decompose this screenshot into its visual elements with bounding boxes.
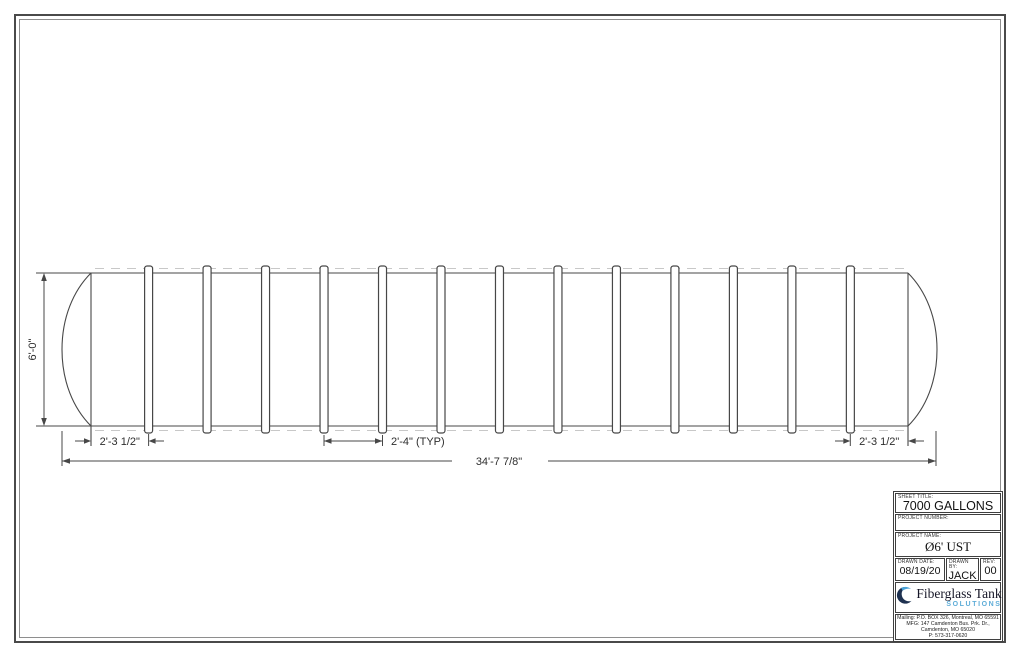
project-name-cell: PROJECT NAME: Ø6' UST: [895, 532, 1001, 557]
company-logo: Fiberglass Tank SOLUTIONS: [894, 585, 1001, 610]
dimensions: 6'-0" 2'-3 1/2" 2'-4" (TYP) 2'-3 1/2" 34…: [27, 273, 936, 468]
project-name-value: Ø6' UST: [896, 539, 1000, 554]
drawn-by-value: JACK: [947, 570, 978, 582]
project-number-label: PROJECT NUMBER:: [896, 515, 1000, 521]
tank-ribs: [145, 266, 855, 433]
tank-rib: [437, 266, 445, 433]
logo-cell: Fiberglass Tank SOLUTIONS: [895, 582, 1001, 613]
dimension-lines: [36, 273, 936, 466]
tank-rib: [612, 266, 620, 433]
logo-company-name: Fiberglass Tank: [916, 587, 1001, 600]
sheet-title-value: 7000 GALLONS: [896, 500, 1000, 513]
tank-rib: [379, 266, 387, 433]
tank-rib: [145, 266, 153, 433]
tank-drawing: 6'-0" 2'-3 1/2" 2'-4" (TYP) 2'-3 1/2" 34…: [0, 0, 1024, 661]
fiberglass-tank-logo-icon: [894, 585, 914, 610]
drawing-sheet: 6'-0" 2'-3 1/2" 2'-4" (TYP) 2'-3 1/2" 34…: [0, 0, 1024, 661]
tank-rib: [262, 266, 270, 433]
dimension-arrowheads: [41, 273, 936, 464]
logo-tagline: SOLUTIONS: [946, 601, 1001, 609]
drawn-by-cell: DRAWN BY: JACK: [946, 558, 979, 581]
sheet-title-cell: SHEET TITLE: 7000 GALLONS: [895, 493, 1001, 513]
tank-rib: [846, 266, 854, 433]
tank-right-dome: [908, 273, 937, 426]
title-block: SHEET TITLE: 7000 GALLONS PROJECT NUMBER…: [893, 491, 1003, 642]
tank-rib: [554, 266, 562, 433]
logo-text: Fiberglass Tank SOLUTIONS: [916, 587, 1001, 609]
tank-rib: [671, 266, 679, 433]
rev-cell: REV: 00: [980, 558, 1001, 581]
drawn-date-value: 08/19/20: [896, 565, 944, 577]
tank-left-dome: [62, 273, 91, 426]
dim-overall-length: 34'-7 7/8": [476, 456, 522, 468]
tank-rib: [495, 266, 503, 433]
tank-rib: [203, 266, 211, 433]
dim-end-spacing-right: 2'-3 1/2": [859, 436, 899, 448]
project-number-cell: PROJECT NUMBER:: [895, 514, 1001, 531]
drawn-by-label: DRAWN BY:: [947, 559, 978, 570]
dim-end-spacing-left: 2'-3 1/2": [100, 436, 140, 448]
dim-diameter: 6'-0": [27, 338, 39, 360]
drawn-row: DRAWN DATE: 08/19/20 DRAWN BY: JACK REV:…: [895, 558, 1001, 581]
rev-value: 00: [981, 565, 1000, 577]
dim-rib-spacing: 2'-4" (TYP): [391, 436, 445, 448]
tank-rib: [729, 266, 737, 433]
address-cell: Mailing: P.O. BOX 326, Montreal, MO 6559…: [895, 614, 1001, 640]
address-line-phone: P: 573-317-0620: [896, 633, 1000, 639]
tank-rib: [788, 266, 796, 433]
tank-rib: [320, 266, 328, 433]
drawn-date-cell: DRAWN DATE: 08/19/20: [895, 558, 945, 581]
